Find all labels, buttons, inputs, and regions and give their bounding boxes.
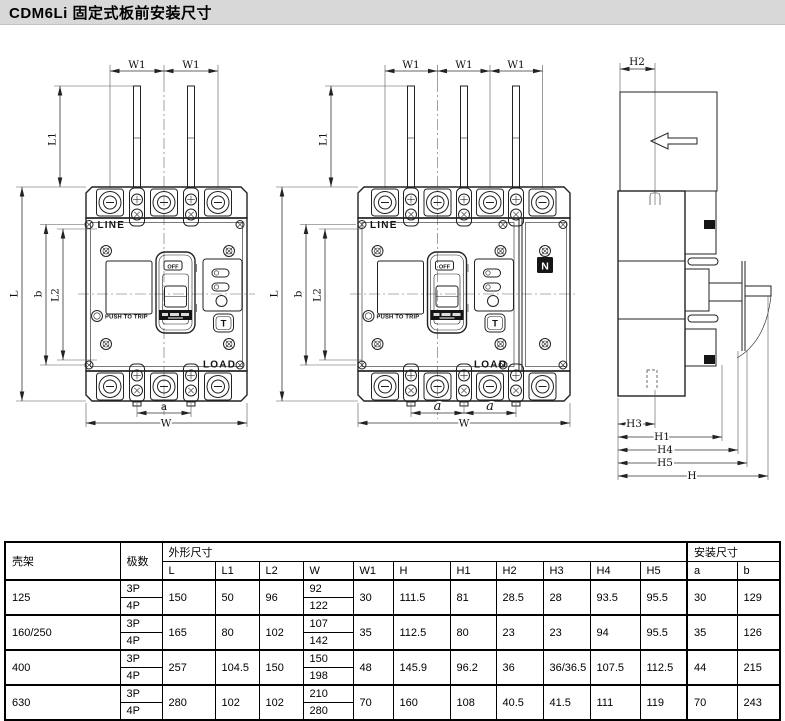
dim-w1: W1 — [455, 59, 472, 71]
dim-l: L — [269, 290, 281, 297]
poles-cell: 4P — [120, 633, 162, 651]
dim-cell: 107.5 — [590, 650, 640, 685]
col-H4: H4 — [590, 562, 640, 581]
dim-l2: L2 — [50, 288, 62, 302]
dim-cell: 30 — [687, 580, 737, 615]
dim-l: L — [9, 290, 21, 297]
dim-cell: 243 — [737, 685, 780, 720]
dim-cell: 102 — [259, 685, 303, 720]
dim-cell: 96.2 — [450, 650, 496, 685]
dim-w1: W1 — [182, 59, 199, 71]
col-H3: H3 — [543, 562, 590, 581]
dim-l1: L1 — [47, 132, 59, 146]
dim-cell: 95.5 — [640, 615, 687, 650]
dim-w1: W1 — [128, 59, 145, 71]
dim-cell: 28.5 — [496, 580, 543, 615]
dim-w1: W1 — [507, 59, 524, 71]
dim-cell: 81 — [450, 580, 496, 615]
poles-cell: 3P — [120, 685, 162, 703]
col-L2: L2 — [259, 562, 303, 581]
dim-cell: 95.5 — [640, 580, 687, 615]
busbar-plate — [620, 92, 717, 191]
dim-cell: 94 — [590, 615, 640, 650]
dim-cell: 210 — [303, 685, 353, 703]
frame-cell: 400 — [5, 650, 120, 685]
dim-cell: 50 — [215, 580, 259, 615]
dim-cell: 111 — [590, 685, 640, 720]
dim-h3: H3 — [626, 418, 642, 430]
dim-cell: 102 — [215, 685, 259, 720]
front-view-4p: W1 W1 W1 L1 LINE LOAD N L — [269, 59, 579, 430]
dim-cell: 150 — [162, 580, 215, 615]
dim-cell: 150 — [259, 650, 303, 685]
dim-cell: 36/36.5 — [543, 650, 590, 685]
header-frame: 壳架 — [5, 542, 120, 580]
dim-h: H — [687, 470, 696, 482]
dim-a: a — [434, 399, 442, 414]
dim-cell: 96 — [259, 580, 303, 615]
dim-cell: 70 — [353, 685, 393, 720]
dim-cell: 80 — [450, 615, 496, 650]
table-row: 125 3P 150 50 96 92 30 111.5 81 28.5 28 … — [5, 580, 780, 598]
dim-cell: 107 — [303, 615, 353, 633]
dim-cell: 145.9 — [393, 650, 450, 685]
table-row: 160/250 3P 165 80 102 107 35 112.5 80 23… — [5, 615, 780, 633]
dim-cell: 80 — [215, 615, 259, 650]
frame-cell: 630 — [5, 685, 120, 720]
dim-l1: L1 — [318, 132, 330, 146]
dim-cell: 126 — [737, 615, 780, 650]
load-label: LOAD — [203, 360, 236, 371]
col-H1: H1 — [450, 562, 496, 581]
col-W1: W1 — [353, 562, 393, 581]
frame-cell: 125 — [5, 580, 120, 615]
table-row: 630 3P 280 102 102 210 70 160 108 40.5 4… — [5, 685, 780, 703]
dim-b: b — [293, 290, 305, 297]
header-poles: 极数 — [120, 542, 162, 580]
dim-h4: H4 — [657, 444, 673, 456]
dim-cell: 165 — [162, 615, 215, 650]
dim-cell: 40.5 — [496, 685, 543, 720]
dim-a: a — [161, 401, 167, 413]
col-L1: L1 — [215, 562, 259, 581]
poles-cell: 4P — [120, 598, 162, 616]
dim-cell: 35 — [687, 615, 737, 650]
frame-cell: 160/250 — [5, 615, 120, 650]
dim-h2: H2 — [629, 56, 645, 68]
dim-w1: W1 — [402, 59, 419, 71]
col-a: a — [687, 562, 737, 581]
dim-cell: 92 — [303, 580, 353, 598]
dim-cell: 23 — [543, 615, 590, 650]
dim-cell: 112.5 — [640, 650, 687, 685]
neutral-label: N — [541, 261, 549, 273]
dim-cell: 198 — [303, 668, 353, 686]
dim-cell: 160 — [393, 685, 450, 720]
poles-cell: 3P — [120, 580, 162, 598]
dim-cell: 122 — [303, 598, 353, 616]
handle-side — [745, 286, 771, 296]
dim-cell: 30 — [353, 580, 393, 615]
dim-b: b — [33, 290, 45, 297]
col-H5: H5 — [640, 562, 687, 581]
table-row: 400 3P 257 104.5 150 150 48 145.9 96.2 3… — [5, 650, 780, 668]
header-outline-dims: 外形尺寸 — [162, 542, 687, 562]
poles-cell: 3P — [120, 615, 162, 633]
dim-cell: 70 — [687, 685, 737, 720]
dim-l2: L2 — [312, 288, 324, 302]
header-mounting-dims: 安装尺寸 — [687, 542, 780, 562]
dim-cell: 104.5 — [215, 650, 259, 685]
dim-cell: 119 — [640, 685, 687, 720]
dim-cell: 280 — [303, 703, 353, 721]
dim-cell: 44 — [687, 650, 737, 685]
dim-cell: 23 — [496, 615, 543, 650]
dim-cell: 102 — [259, 615, 303, 650]
direction-arrow-icon — [651, 133, 697, 149]
poles-cell: 4P — [120, 668, 162, 686]
front-view-3p: W1 W1 L1 LINE LOAD L b L2 — [9, 59, 256, 430]
side-view: H2 H3 H1 H4 H5 H — [618, 56, 771, 482]
col-L: L — [162, 562, 215, 581]
dim-cell: 108 — [450, 685, 496, 720]
dim-h5: H5 — [657, 457, 673, 469]
load-label: LOAD — [474, 360, 507, 371]
dim-cell: 215 — [737, 650, 780, 685]
line-label: LINE — [98, 220, 126, 231]
dim-cell: 93.5 — [590, 580, 640, 615]
page-title: CDM6Li 固定式板前安装尺寸 — [9, 2, 212, 23]
dim-h1: H1 — [654, 431, 670, 443]
technical-drawing: OFF T PUSH TO TRIP — [0, 25, 785, 535]
dim-cell: 28 — [543, 580, 590, 615]
dim-cell: 142 — [303, 633, 353, 651]
dim-cell: 257 — [162, 650, 215, 685]
dim-w: W — [459, 418, 470, 430]
col-H: H — [393, 562, 450, 581]
dimension-spec-table: 壳架 极数 外形尺寸 安装尺寸 L L1 L2 W W1 H H1 H2 H3 … — [4, 541, 781, 721]
dim-cell: 35 — [353, 615, 393, 650]
col-W: W — [303, 562, 353, 581]
col-b: b — [737, 562, 780, 581]
dim-cell: 150 — [303, 650, 353, 668]
dim-cell: 36 — [496, 650, 543, 685]
col-H2: H2 — [496, 562, 543, 581]
poles-cell: 3P — [120, 650, 162, 668]
dim-cell: 111.5 — [393, 580, 450, 615]
dim-cell: 129 — [737, 580, 780, 615]
dim-cell: 41.5 — [543, 685, 590, 720]
dim-cell: 112.5 — [393, 615, 450, 650]
dim-cell: 280 — [162, 685, 215, 720]
title-bar: CDM6Li 固定式板前安装尺寸 — [0, 0, 785, 25]
dim-a: a — [486, 399, 494, 414]
dim-w: W — [161, 418, 172, 430]
dim-cell: 48 — [353, 650, 393, 685]
poles-cell: 4P — [120, 703, 162, 721]
line-label: LINE — [370, 220, 398, 231]
